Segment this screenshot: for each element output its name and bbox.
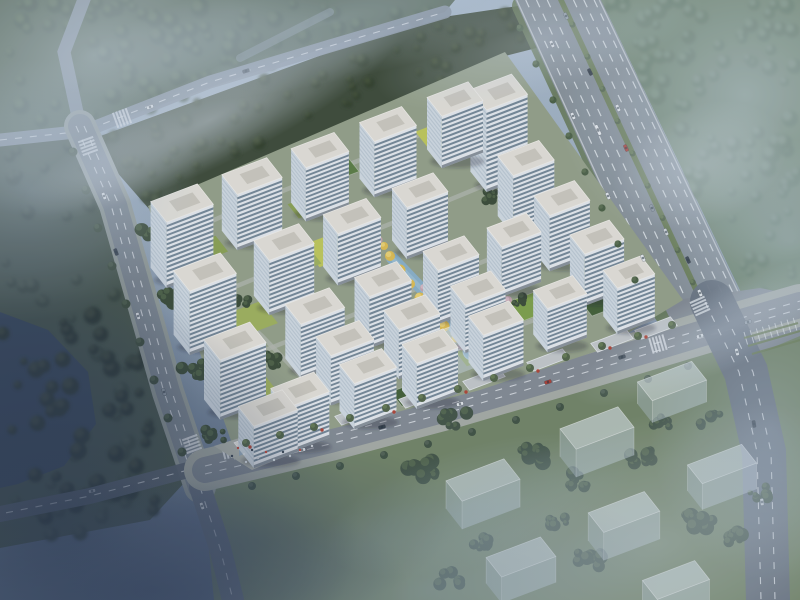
cool-tint-overlay — [0, 0, 800, 600]
aerial-rendering — [0, 0, 800, 600]
atmosphere-layer — [0, 0, 800, 600]
aerial-rendering-canvas — [0, 0, 800, 600]
